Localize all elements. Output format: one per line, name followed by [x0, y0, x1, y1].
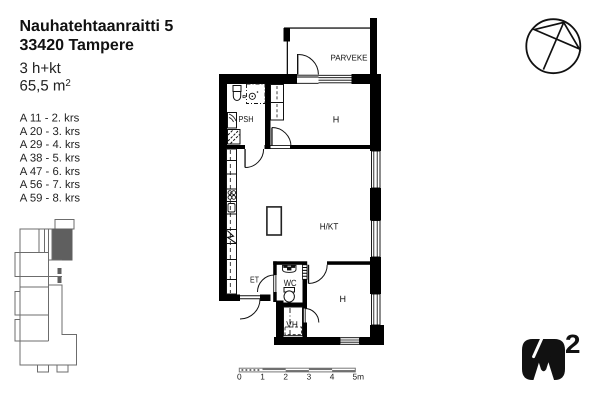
svg-text:H/KT: H/KT [320, 221, 339, 231]
svg-text:H: H [340, 294, 347, 304]
svg-text:ET: ET [250, 275, 260, 285]
svg-text:A 59 - 8. krs: A 59 - 8. krs [20, 193, 81, 205]
svg-text:2: 2 [283, 372, 288, 382]
svg-text:VH: VH [286, 319, 298, 329]
svg-text:A 47 - 6. krs: A 47 - 6. krs [20, 166, 81, 178]
svg-text:PARVEKE: PARVEKE [331, 53, 368, 63]
svg-text:3 h+kt: 3 h+kt [20, 60, 62, 77]
svg-text:1: 1 [260, 372, 265, 382]
svg-text:5m: 5m [353, 372, 365, 382]
svg-text:0: 0 [237, 372, 242, 382]
svg-text:A 11 - 2. krs: A 11 - 2. krs [20, 112, 80, 124]
svg-text:A 20 - 3. krs: A 20 - 3. krs [20, 126, 81, 138]
svg-text:PSH: PSH [239, 114, 254, 124]
svg-text:33420 Tampere: 33420 Tampere [20, 37, 135, 54]
svg-text:Nauhatehtaanraitti 5: Nauhatehtaanraitti 5 [20, 18, 174, 35]
svg-text:A 56 - 7. krs: A 56 - 7. krs [20, 179, 81, 191]
svg-text:2: 2 [565, 329, 581, 359]
svg-text:65,5 m2: 65,5 m2 [20, 78, 71, 95]
svg-text:WC: WC [284, 278, 297, 288]
svg-text:4: 4 [330, 372, 335, 382]
svg-text:3: 3 [307, 372, 312, 382]
svg-text:A 38 - 5. krs: A 38 - 5. krs [20, 153, 81, 165]
svg-text:H: H [333, 114, 340, 124]
svg-text:A 29 - 4. krs: A 29 - 4. krs [20, 139, 81, 151]
